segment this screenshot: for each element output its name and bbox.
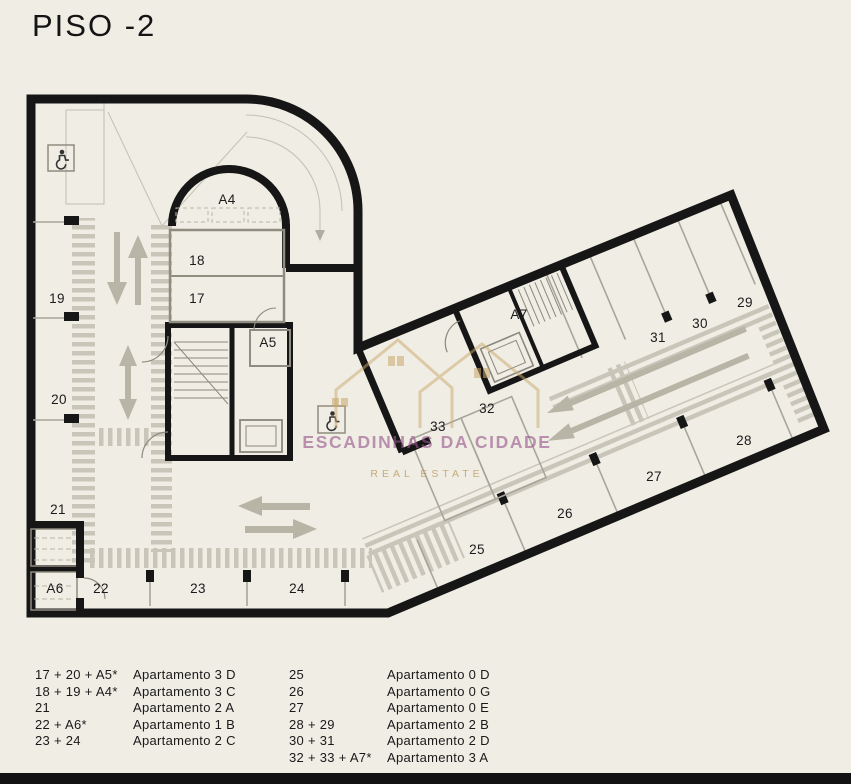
legend-row: 23 + 24Apartamento 2 C [35, 733, 236, 750]
footer-bar [0, 773, 851, 784]
spot-label-26: 26 [557, 506, 573, 521]
spot-label-28: 28 [736, 433, 752, 448]
legend-row: 22 + A6*Apartamento 1 B [35, 717, 236, 734]
legend-column-left: 17 + 20 + A5*Apartamento 3 D 18 + 19 + A… [35, 667, 236, 750]
spot-label-29: 29 [737, 295, 753, 310]
spot-label-a6: A6 [46, 581, 63, 596]
legend-name: Apartamento 0 G [387, 684, 491, 701]
legend-name: Apartamento 3 C [133, 684, 236, 701]
spot-label-18: 18 [189, 253, 205, 268]
spot-label-19: 19 [49, 291, 65, 306]
legend-row: 27Apartamento 0 E [289, 700, 491, 717]
wheelchair-icon [327, 411, 339, 430]
legend-row: 32 + 33 + A7*Apartamento 3 A [289, 750, 491, 767]
legend-row: 26Apartamento 0 G [289, 684, 491, 701]
legend-row: 18 + 19 + A4*Apartamento 3 C [35, 684, 236, 701]
legend-name: Apartamento 1 B [133, 717, 235, 734]
accessible-parking-2 [318, 406, 345, 433]
arrow-left-icon [238, 496, 310, 516]
legend-name: Apartamento 3 D [133, 667, 236, 684]
legend-name: Apartamento 0 E [387, 700, 489, 717]
legend-row: 28 + 29Apartamento 2 B [289, 717, 491, 734]
legend-name: Apartamento 0 D [387, 667, 490, 684]
spot-label-33: 33 [430, 419, 446, 434]
rooms-17-18 [170, 230, 284, 322]
spot-label-17: 17 [189, 291, 205, 306]
watermark-subtitle: REAL ESTATE [370, 468, 483, 480]
arrow-up-icon [128, 235, 148, 305]
floor-plan: ESCADINHAS DA CIDADE REAL ESTATE 17 18 1… [0, 0, 851, 660]
legend-column-right: 25Apartamento 0 D 26Apartamento 0 G 27Ap… [289, 667, 491, 766]
arrow-down-icon [107, 232, 127, 305]
spot-label-a7: A7 [510, 307, 527, 322]
accessible-parking-1 [48, 145, 74, 171]
legend-name: Apartamento 3 A [387, 750, 488, 767]
spot-label-31: 31 [650, 330, 666, 345]
legend-name: Apartamento 2 B [387, 717, 489, 734]
spot-label-25: 25 [469, 542, 485, 557]
legend-code: 17 + 20 + A5* [35, 667, 133, 684]
legend-code: 26 [289, 684, 387, 701]
spot-label-21: 21 [50, 502, 66, 517]
spot-label-32: 32 [479, 401, 495, 416]
spot-label-20: 20 [51, 392, 67, 407]
ramp-guide-lines [66, 99, 342, 231]
legend-row: 17 + 20 + A5*Apartamento 3 D [35, 667, 236, 684]
legend-code: 22 + A6* [35, 717, 133, 734]
arrow-double-icon [119, 345, 137, 420]
divider-stubs-22-24 [146, 570, 349, 582]
right-wing [291, 196, 819, 609]
divider-stubs-29-31 [661, 292, 716, 323]
legend-name: Apartamento 2 D [387, 733, 490, 750]
legend-code: 18 + 19 + A4* [35, 684, 133, 701]
legend-row: 30 + 31Apartamento 2 D [289, 733, 491, 750]
legend-row: 25Apartamento 0 D [289, 667, 491, 684]
legend-code: 28 + 29 [289, 717, 387, 734]
legend-row: 21Apartamento 2 A [35, 700, 236, 717]
storage-a4-dashes [176, 208, 280, 222]
legend-code: 27 [289, 700, 387, 717]
stair-treads-icon [174, 342, 228, 404]
watermark-logo-windows [332, 356, 490, 407]
spot-label-24: 24 [289, 581, 305, 596]
spot-label-a4: A4 [218, 192, 235, 207]
ramp-arrowhead-icon [315, 230, 325, 241]
spot-label-23: 23 [190, 581, 206, 596]
spot-label-27: 27 [646, 469, 662, 484]
wheelchair-icon [57, 150, 69, 169]
spot-label-22: 22 [93, 581, 109, 596]
arrow-right-icon [245, 519, 317, 539]
legend-code: 32 + 33 + A7* [289, 750, 387, 767]
legend-name: Apartamento 2 A [133, 700, 234, 717]
legend-code: 30 + 31 [289, 733, 387, 750]
spot-label-30: 30 [692, 316, 708, 331]
watermark: ESCADINHAS DA CIDADE REAL ESTATE [302, 340, 551, 480]
legend-code: 23 + 24 [35, 733, 133, 750]
legend-name: Apartamento 2 C [133, 733, 236, 750]
legend-code: 25 [289, 667, 387, 684]
spot-label-a5: A5 [259, 335, 276, 350]
watermark-title: ESCADINHAS DA CIDADE [302, 432, 551, 452]
legend-code: 21 [35, 700, 133, 717]
